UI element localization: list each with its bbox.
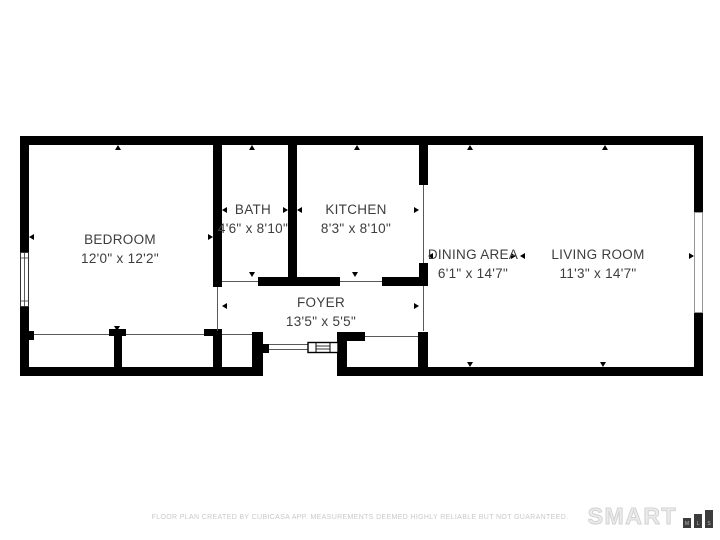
window-right-icon [695,213,703,313]
entry-door-icon [308,343,338,353]
disclaimer-text: FLOOR PLAN CREATED BY CUBICASA APP. MEAS… [152,514,569,521]
room-dimensions: 11'3" x 14'7" [551,264,644,283]
room-label-kitchen: KITCHEN 8'3" x 8'10" [321,200,391,238]
room-dimensions: 8'3" x 8'10" [321,219,391,238]
room-name: LIVING ROOM [551,245,644,264]
room-label-living-room: LIVING ROOM 11'3" x 14'7" [551,245,644,283]
smartmls-logo: SMART M L S [588,505,713,528]
room-name: BATH [218,200,288,219]
logo-bar-l: L [694,514,702,528]
room-name: BEDROOM [81,230,159,249]
logo-bar-s: S [705,510,713,528]
room-label-foyer: FOYER 13'5" x 5'5" [286,293,356,331]
smartmls-logo-text: SMART [588,505,677,528]
room-name: KITCHEN [321,200,391,219]
room-label-bedroom: BEDROOM 12'0" x 12'2" [81,230,159,268]
room-name: DINING AREA [428,245,518,264]
room-dimensions: 4'6" x 8'10" [218,219,288,238]
room-dimensions: 13'5" x 5'5" [286,312,356,331]
logo-bar-m: M [683,518,691,528]
window-left-icon [21,253,29,307]
room-label-dining-area: DINING AREA 6'1" x 14'7" [428,245,518,283]
room-label-bath: BATH 4'6" x 8'10" [218,200,288,238]
smartmls-logo-bars-icon: M L S [683,510,713,528]
room-dimensions: 6'1" x 14'7" [428,264,518,283]
room-name: FOYER [286,293,356,312]
floor-plan-page: BEDROOM 12'0" x 12'2" BATH 4'6" x 8'10" … [0,0,720,540]
room-dimensions: 12'0" x 12'2" [81,249,159,268]
